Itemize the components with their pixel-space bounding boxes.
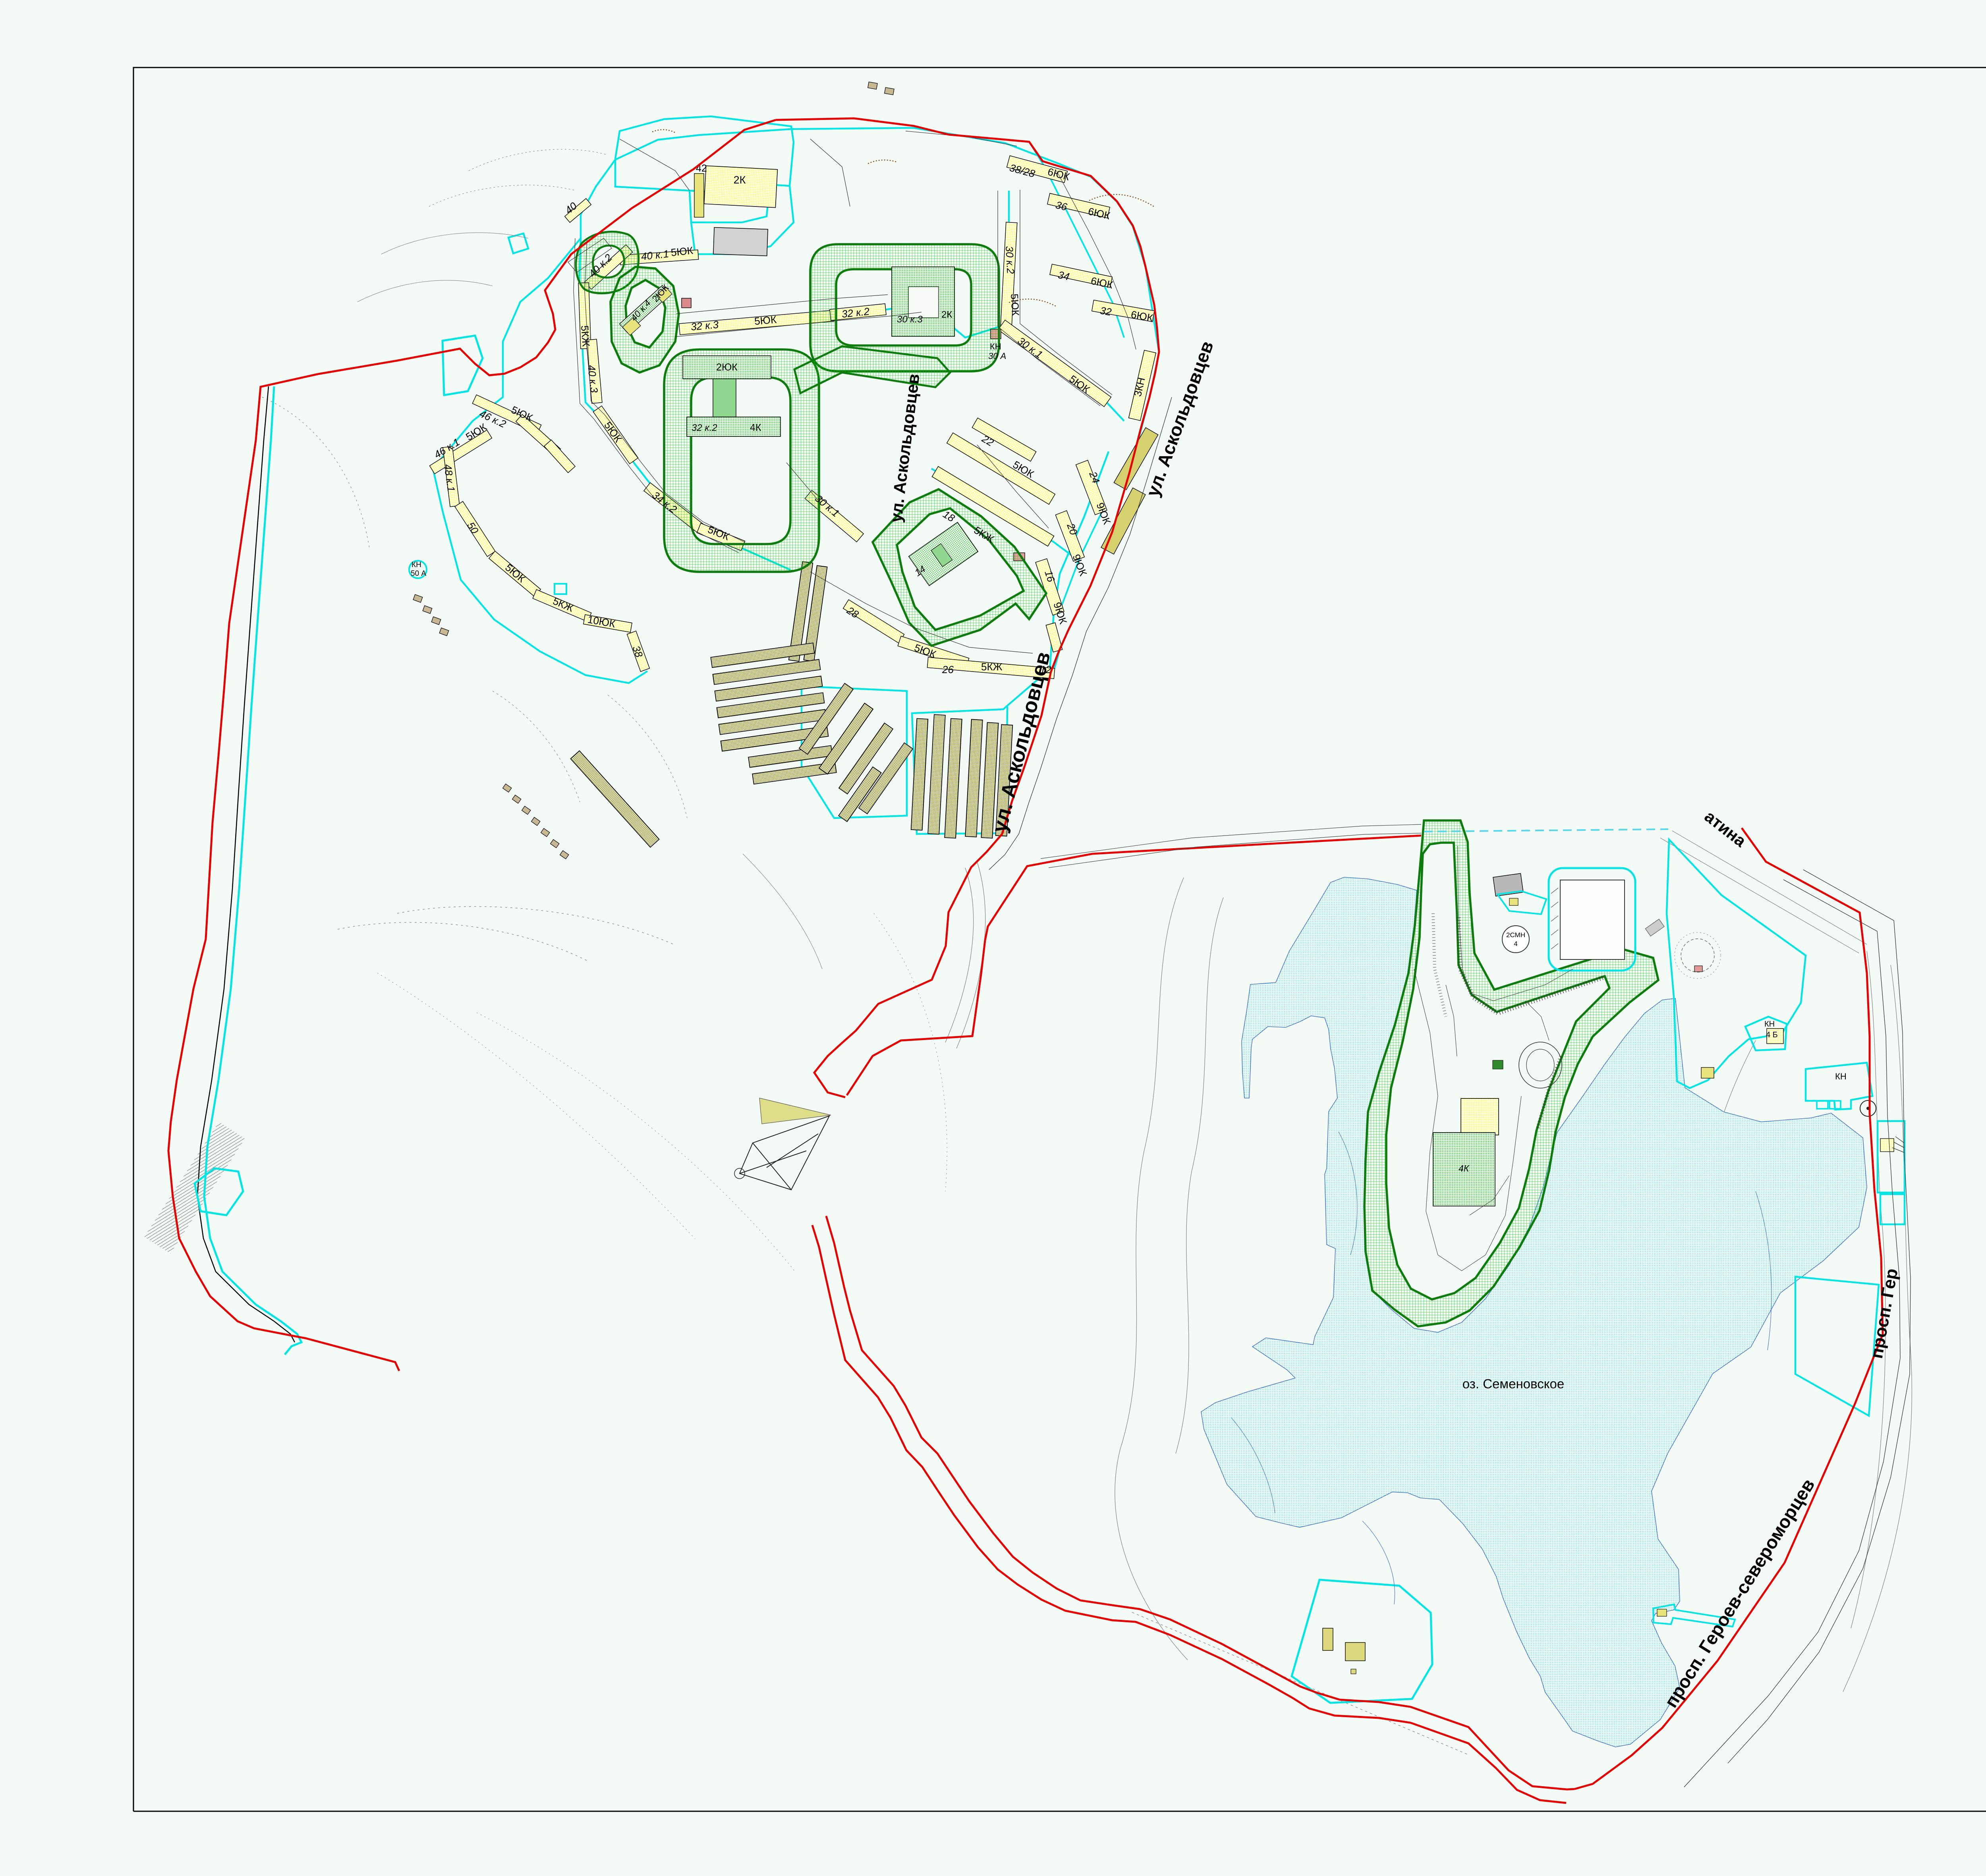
svg-text:30 А: 30 А — [988, 351, 1006, 361]
svg-text:КН: КН — [1835, 1071, 1847, 1081]
svg-text:42: 42 — [696, 163, 707, 174]
svg-text:5ЮК: 5ЮК — [670, 244, 694, 259]
svg-text:КН: КН — [990, 342, 1001, 351]
svg-text:КН: КН — [411, 561, 421, 569]
svg-text:50 А: 50 А — [411, 569, 426, 578]
svg-text:32: 32 — [1099, 304, 1113, 318]
svg-text:2ЮК: 2ЮК — [716, 362, 738, 373]
svg-text:4К: 4К — [1459, 1163, 1470, 1173]
svg-text:5КЖ: 5КЖ — [981, 661, 1003, 673]
svg-text:32 к.3: 32 к.3 — [690, 318, 719, 333]
svg-text:5ЮК: 5ЮК — [754, 313, 777, 327]
svg-text:34: 34 — [1057, 269, 1071, 283]
svg-text:4 Б: 4 Б — [1766, 1031, 1778, 1039]
svg-text:32 к.2: 32 к.2 — [692, 423, 717, 433]
svg-text:30 к.3: 30 к.3 — [897, 314, 923, 325]
svg-text:4: 4 — [1514, 940, 1517, 948]
svg-text:2К: 2К — [734, 174, 746, 186]
svg-text:5ЮК: 5ЮК — [1008, 293, 1022, 316]
svg-text:30 к.2: 30 к.2 — [1003, 246, 1017, 274]
svg-text:12: 12 — [1040, 664, 1051, 676]
svg-text:2СМН: 2СМН — [1506, 931, 1525, 939]
svg-text:26: 26 — [942, 664, 954, 676]
svg-text:КН: КН — [1764, 1020, 1775, 1029]
svg-text:5КЖ: 5КЖ — [579, 325, 592, 347]
svg-text:4К: 4К — [750, 422, 761, 433]
svg-text:оз. Семеновское: оз. Семеновское — [1462, 1376, 1564, 1391]
svg-text:2К: 2К — [941, 309, 952, 320]
